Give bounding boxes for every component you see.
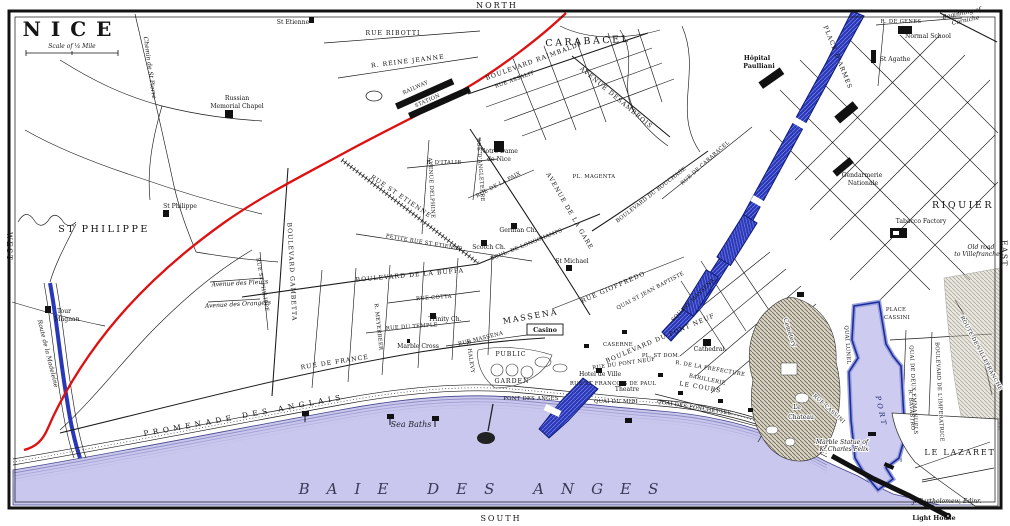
st-agathe-building [871,50,876,63]
quai-st-jean-baptiste: QUAI ST JEAN BAPTISTE [616,271,685,312]
st-philippe-church-building [163,210,169,217]
tour-magnan-line2: Magnan [54,316,79,323]
marble-cross: Marble Cross [397,343,439,350]
rue-cotta: RUE COTTA [416,294,452,302]
scale-label: Scale of ¼ Mile [48,43,96,50]
casino: Casino [533,327,557,334]
trinity-church: Trinity Ch. [428,316,461,323]
avenue-des-orangers: Avenue des Orangers [204,299,271,310]
scale-bar [26,50,118,56]
map-page: NICE Scale of ¼ Mile NORTH SOUTH WEST EA… [0,0,1010,526]
avenue-de-la-gare: AVENUE DE LA GARE [544,171,594,251]
compass-east: EAST [1000,240,1009,267]
rue-halevy: R. HALEVY [465,340,476,374]
sea-baths: Sea Baths [391,420,432,429]
gendarmerie-line2: Nationale [848,180,879,187]
rue-du-temple: RUE DU TEMPLE [386,322,438,332]
chateau-hill [749,298,840,461]
scotch-church: Scotch Ch. [472,244,506,251]
place-cassini-line1: PLACE [886,307,906,313]
st-michael-building [566,265,572,271]
avenue-desambrois: AVENUE DESAMBROIS [577,65,653,131]
tabacco-factory: Tabacco Factory [896,218,947,225]
tour-magnan-building [45,306,51,313]
map-credit: J. Bartholomew, Edinr. [911,498,982,505]
mont-boron-slope [944,268,1000,430]
title-block: NICE Scale of ¼ Mile [23,17,122,56]
rue-de-france: RUE DE FRANCE [300,354,369,372]
compass-north: NORTH [476,1,518,10]
hotel-de-ville: Hotel de Ville [579,371,622,378]
chemin-de-st-pierre: Chemin de St Pierre [142,36,158,100]
gendarmerie-line1: Gendarmerie [842,172,883,179]
theatre: Theatre [615,386,640,393]
st-philippe-church: St Philippe [163,203,197,210]
rue-de-la-prefecture: R. DE LA PREFECTURE [675,360,746,378]
cathedral: Cathedral [694,346,725,353]
rue-ribotti: RUE RIBOTTI [365,30,420,37]
german-church: German Ch. [499,227,536,234]
covered-paillon-pont-neuf [717,215,757,266]
chateau-ruins [781,363,797,375]
place-cassini-line2: CASSINI [884,315,910,321]
rue-st-etienne: RUE ST ETIENNE [369,174,432,220]
st-michael: St Michael [555,258,588,265]
old-road-line1: Old road [968,244,995,251]
notre-dame-line2: de Nice [487,156,511,163]
russian-chapel-line2: Memorial Chapel [210,103,263,110]
marble-statue-line1: Marble Statue of [815,439,870,446]
district-carabacel: CARABACEL [545,34,630,49]
public-garden-line1: PUBLIC [495,351,526,358]
district-riquier: RIQUIER [932,200,994,211]
notre-dame-line1: Notre Dame [480,148,518,155]
cathedral-building [703,339,711,346]
caserne: CASERNE [603,342,633,348]
blvd-de-la-buffa: BOULEVARD DE LA BUFFA [355,267,464,283]
tour-magnan-line1: Tour [57,308,71,315]
public-garden-line2: GARDEN [495,378,530,385]
light-house: Light House [912,515,955,522]
nice-map-canvas: NICE Scale of ¼ Mile NORTH SOUTH WEST EA… [0,0,1010,526]
pl-st-dom: PL. ST DOM. [642,353,680,359]
lazaret-shore [892,413,998,506]
le-chateau-line1: Le [793,404,801,411]
jetee-promenade-casino [477,432,495,444]
rue-de-genes: R. DE GENES [881,19,922,25]
pont-des-anges: PONT DES ANGES [503,396,559,402]
hopital-paulliani-line2: Paulliani [743,63,775,70]
hopital-paulliani-building [758,67,784,88]
quai-lunel: QUAI LUNEL [843,325,852,364]
normal-school: Normal School [905,33,951,40]
old-road-line2: to Villefranche [954,251,1000,258]
hopital-paulliani-line1: Hôpital [744,55,771,62]
pl-magenta: PL. MAGENTA [573,174,616,180]
blvd-du-bouchage: BOULEVARD DU BOUCHAGE [615,166,688,225]
district-le-lazaret: LE LAZARET [924,448,995,457]
blvd-gambetta: BOULEVARD GAMBETTA [285,222,297,321]
bay-label: BAIE DES ANGES [298,480,676,498]
district-st-philippe: ST PHILIPPE [58,224,150,235]
st-agathe: St Agathe [880,56,911,63]
rue-meyerbeer: R. MEYERBEER [373,303,384,351]
compass-west: WEST [5,232,14,261]
le-chateau-line2: Chateau [788,414,814,421]
district-massena: MASSENA [502,307,559,326]
rue-ditalie: R. D'ITALIE [427,160,462,166]
st-etienne: St Etienne [277,19,310,26]
marble-statue-line2: K. Charles Felix [818,446,869,453]
compass-south: SOUTH [480,514,521,523]
russian-chapel-building [225,110,233,118]
map-title: NICE [23,17,122,41]
quai-du-midi: QUAI DU MIDI [594,399,638,405]
rue-reine-jeanne: R. REINE JEANNE [371,54,445,70]
russian-chapel-line1: Russian [225,95,249,102]
rue-st-francois-de-paul: RUE ST FRANCOIS DE PAUL [570,381,657,387]
rue-de-carabacel: RUE DE CARABACEL [680,140,731,187]
st-etienne-church-building [309,17,314,23]
